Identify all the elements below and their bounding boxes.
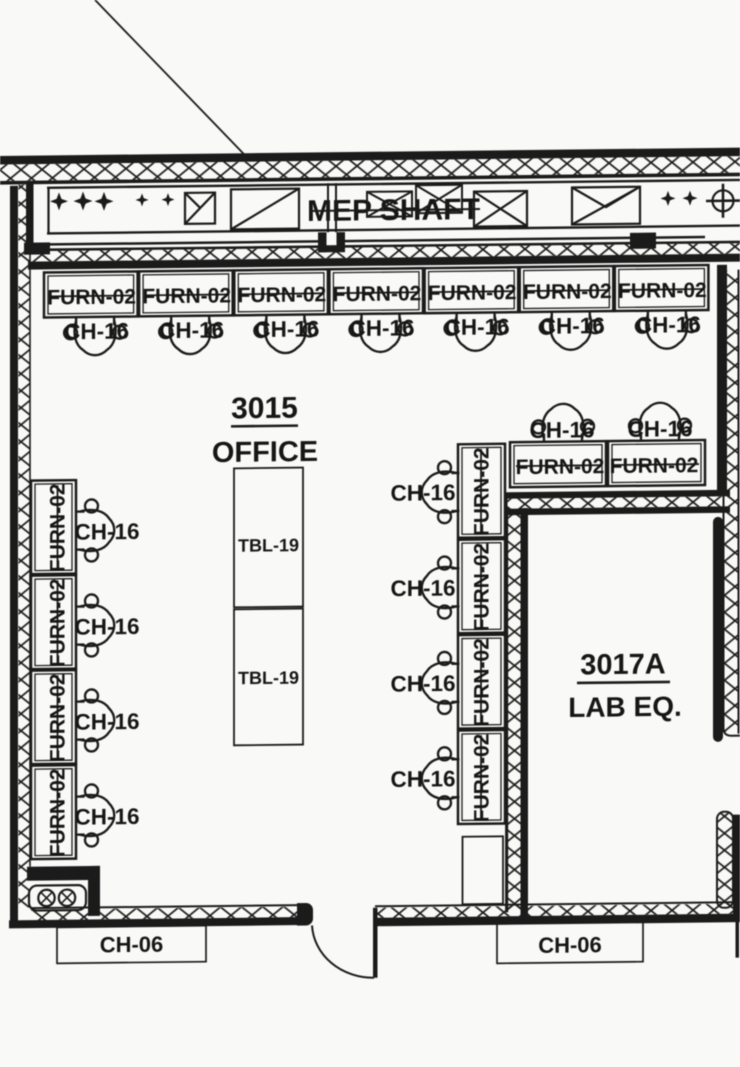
svg-text:LAB EQ.: LAB EQ. bbox=[568, 691, 682, 723]
svg-text:FURN-02: FURN-02 bbox=[471, 638, 494, 727]
svg-text:FURN-02: FURN-02 bbox=[238, 283, 327, 307]
svg-text:CH-16: CH-16 bbox=[254, 316, 319, 342]
svg-text:CH-16: CH-16 bbox=[74, 519, 139, 545]
svg-text:FURN-02: FURN-02 bbox=[47, 285, 136, 309]
svg-text:FURN-02: FURN-02 bbox=[516, 455, 605, 479]
svg-text:FURN-02: FURN-02 bbox=[47, 673, 70, 762]
svg-text:CH-06: CH-06 bbox=[538, 932, 602, 958]
svg-text:FURN-02: FURN-02 bbox=[523, 280, 612, 304]
svg-text:CH-16: CH-16 bbox=[636, 312, 701, 338]
svg-text:FURN-02: FURN-02 bbox=[47, 768, 70, 857]
svg-text:CH-16: CH-16 bbox=[74, 709, 139, 735]
svg-text:FURN-02: FURN-02 bbox=[142, 284, 231, 308]
svg-text:CH-16: CH-16 bbox=[159, 317, 224, 343]
svg-text:TBL-19: TBL-19 bbox=[238, 535, 299, 556]
svg-text:CH-16: CH-16 bbox=[540, 313, 605, 339]
svg-text:CH-16: CH-16 bbox=[64, 319, 129, 345]
svg-text:CH-16: CH-16 bbox=[349, 315, 414, 341]
svg-text:FURN-02: FURN-02 bbox=[47, 483, 70, 572]
svg-text:FURN-02: FURN-02 bbox=[471, 733, 494, 822]
svg-text:TBL-19: TBL-19 bbox=[238, 668, 299, 689]
svg-text:CH-16: CH-16 bbox=[445, 314, 510, 340]
svg-text:CH-06: CH-06 bbox=[100, 932, 164, 958]
svg-text:FURN-02: FURN-02 bbox=[471, 447, 494, 536]
svg-text:CH-16: CH-16 bbox=[627, 416, 692, 442]
svg-text:CH-16: CH-16 bbox=[74, 804, 139, 830]
svg-text:FURN-02: FURN-02 bbox=[333, 282, 422, 306]
svg-text:CH-16: CH-16 bbox=[390, 671, 455, 697]
svg-text:FURN-02: FURN-02 bbox=[471, 543, 494, 632]
svg-text:FURN-02: FURN-02 bbox=[618, 279, 707, 303]
svg-text:CH-16: CH-16 bbox=[390, 480, 455, 506]
svg-text:CH-16: CH-16 bbox=[74, 614, 139, 640]
svg-text:FURN-02: FURN-02 bbox=[428, 281, 517, 305]
svg-text:FURN-02: FURN-02 bbox=[47, 578, 70, 667]
svg-text:FURN-02: FURN-02 bbox=[610, 454, 699, 478]
svg-text:OFFICE: OFFICE bbox=[212, 436, 318, 469]
svg-text:CH-16: CH-16 bbox=[390, 575, 455, 601]
svg-text:3017A: 3017A bbox=[580, 648, 666, 681]
svg-text:CH-16: CH-16 bbox=[529, 417, 594, 443]
svg-text:3015: 3015 bbox=[231, 392, 298, 426]
svg-text:CH-16: CH-16 bbox=[390, 766, 455, 792]
